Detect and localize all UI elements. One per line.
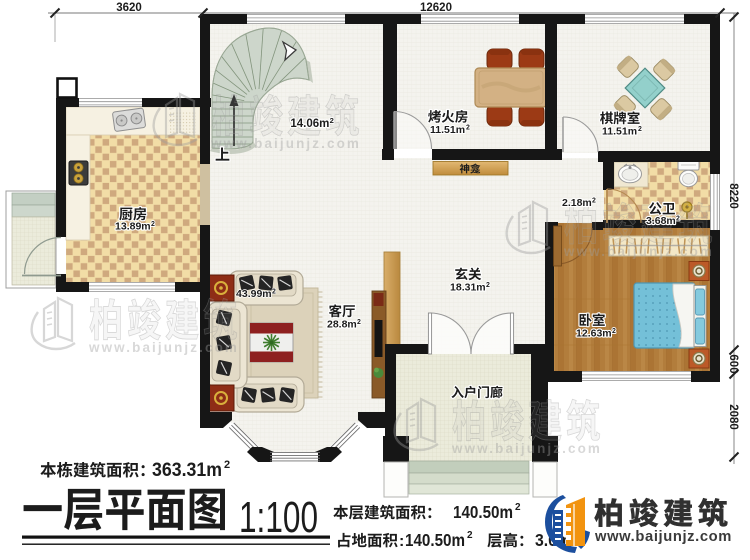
svg-text:11.51m: 11.51m [602,126,637,138]
svg-text:140.50m: 140.50m [453,502,513,522]
svg-text:2: 2 [592,197,596,204]
svg-text:600: 600 [727,354,739,373]
svg-text:2: 2 [151,221,155,228]
svg-text:3620: 3620 [116,2,142,14]
svg-text:14.06m: 14.06m [290,118,329,130]
svg-text:2: 2 [224,459,230,471]
svg-text:2: 2 [486,282,490,289]
svg-text:8220: 8220 [727,183,739,209]
svg-text:2: 2 [612,328,616,335]
svg-text:140.50m: 140.50m [405,530,465,550]
svg-text:3.68m: 3.68m [646,215,676,227]
svg-text:28.8m: 28.8m [327,319,357,331]
svg-text:2: 2 [272,288,276,295]
svg-text::: : [399,533,404,550]
svg-text:www.baijunjz.com: www.baijunjz.com [88,339,239,355]
svg-text:www.baijunjz.com: www.baijunjz.com [563,243,714,259]
svg-text:2: 2 [330,116,334,125]
svg-text:2: 2 [466,124,470,131]
svg-text:43.99m: 43.99m [236,288,272,300]
svg-text:12620: 12620 [420,2,452,14]
svg-text:2080: 2080 [727,404,739,430]
svg-text:11.51m: 11.51m [430,124,465,136]
svg-text:2.18m: 2.18m [562,197,592,209]
svg-text:18.31m: 18.31m [450,282,486,294]
svg-text:1:100: 1:100 [239,493,318,542]
svg-text:www.baijunjz.com: www.baijunjz.com [451,440,602,456]
svg-text:2: 2 [676,215,680,222]
svg-text:13.89m: 13.89m [115,221,151,233]
svg-text:12.63m: 12.63m [576,328,612,340]
svg-text:2: 2 [638,126,642,133]
svg-text:2: 2 [515,502,521,513]
svg-text:www.baijunjz.com: www.baijunjz.com [594,529,732,545]
svg-text:2: 2 [357,319,361,326]
svg-text:363.31m: 363.31m [152,460,222,481]
svg-text:www.baijunjz.com: www.baijunjz.com [210,135,361,151]
svg-text:2: 2 [467,530,473,541]
